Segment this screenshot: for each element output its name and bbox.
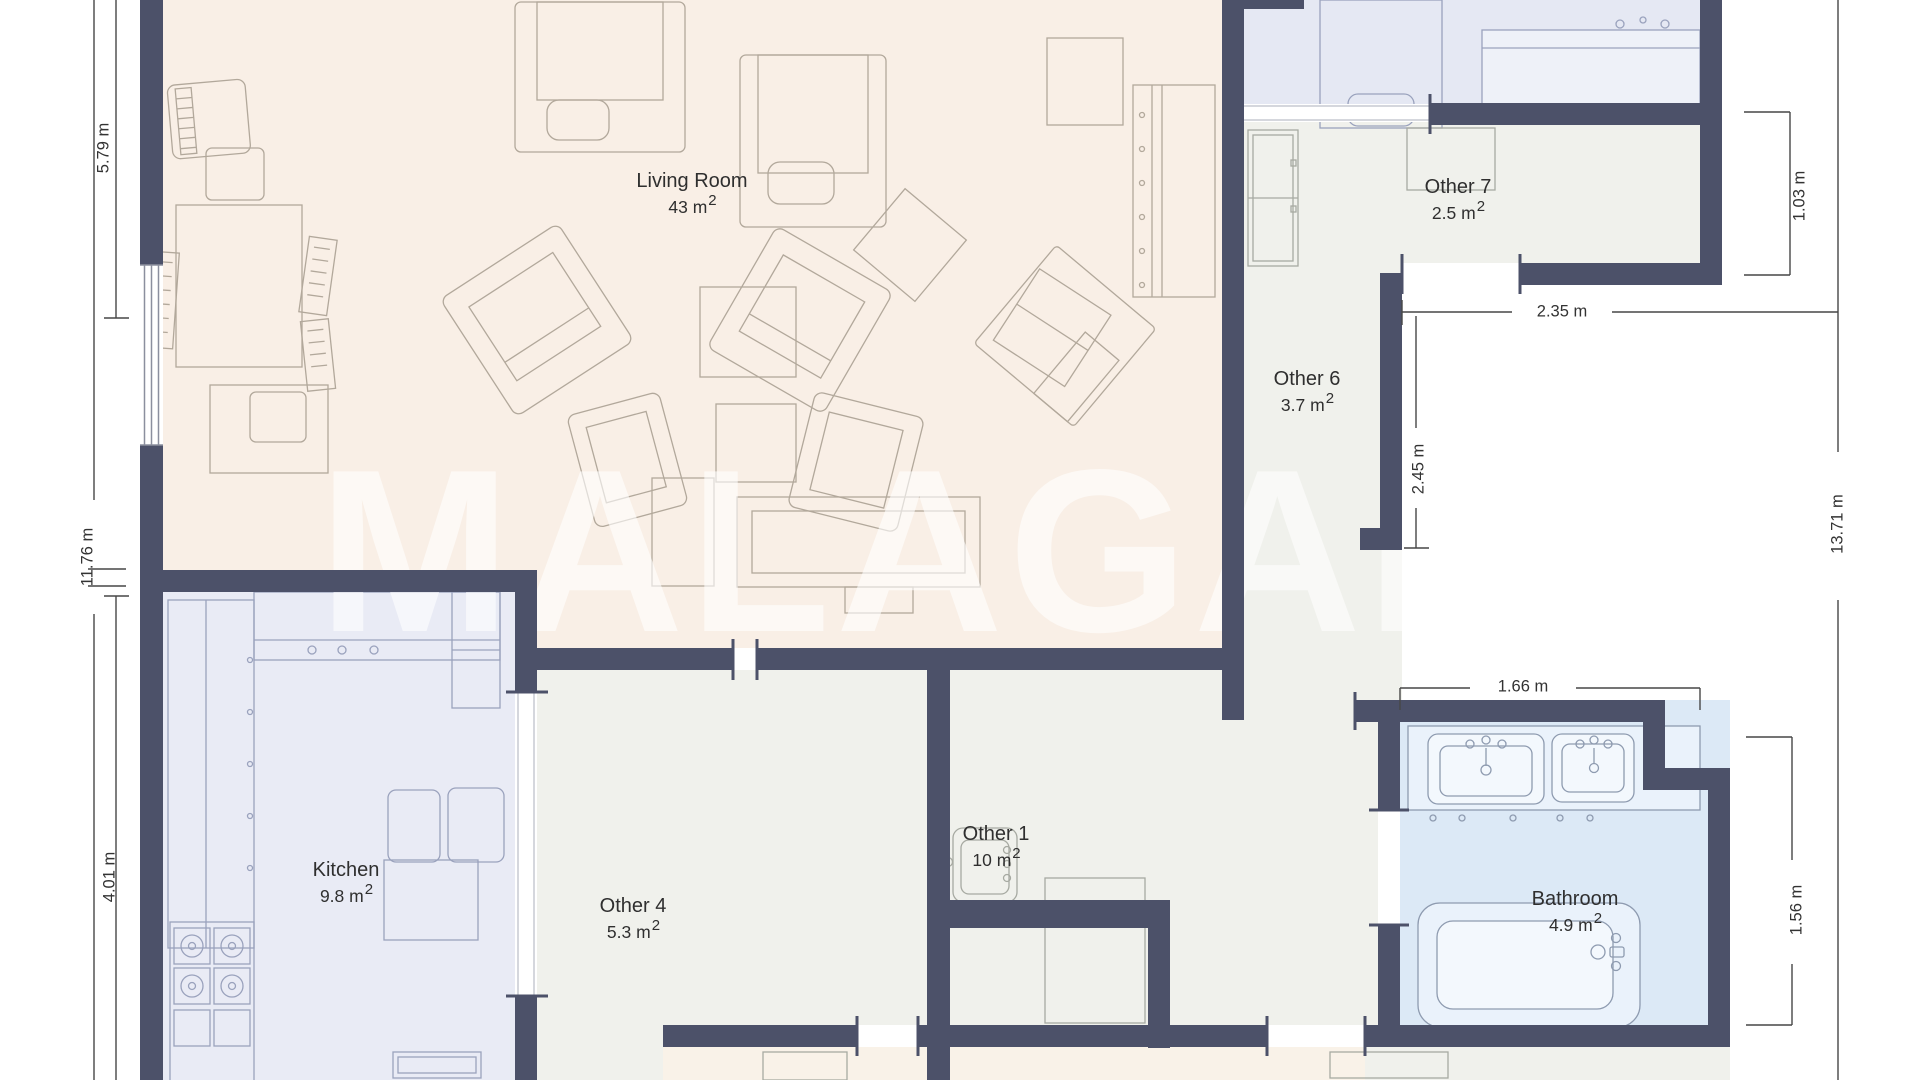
dimension-label-1-03: 1.03 m <box>1791 171 1810 221</box>
room-area: 3.7 m2 <box>1274 392 1341 415</box>
room-label-other1: Other 1 10 m2 <box>963 822 1030 870</box>
room-label-kitchen: Kitchen 9.8 m2 <box>313 858 380 906</box>
room-label-living: Living Room 43 m2 <box>636 169 747 217</box>
dimension-label-2-45: 2.45 m <box>1410 444 1429 494</box>
room-label-other4: Other 4 5.3 m2 <box>600 894 667 942</box>
walls <box>140 0 1730 1080</box>
room-label-other7: Other 7 2.5 m2 <box>1425 175 1492 223</box>
dimension-label-5-79: 5.79 m <box>95 123 114 173</box>
room-area: 10 m2 <box>963 847 1030 870</box>
dimension-label-1-66: 1.66 m <box>1498 678 1548 697</box>
dimension-label-11-76: 11.76 m <box>79 528 98 586</box>
room-name: Other 7 <box>1425 175 1492 200</box>
dimension-label-4-01: 4.01 m <box>101 852 120 902</box>
room-name: Bathroom <box>1532 887 1619 912</box>
room-label-other6: Other 6 3.7 m2 <box>1274 367 1341 415</box>
dimension-label-1-56: 1.56 m <box>1788 885 1807 935</box>
room-area: 2.5 m2 <box>1425 200 1492 223</box>
room-area: 9.8 m2 <box>313 883 380 906</box>
room-name: Other 1 <box>963 822 1030 847</box>
window-icon <box>140 265 163 445</box>
dimension-label-13-71: 13.71 m <box>1829 494 1848 554</box>
dimension-label-2-35: 2.35 m <box>1537 303 1587 322</box>
room-name: Other 4 <box>600 894 667 919</box>
walls-and-dimensions-layer <box>0 0 1920 1080</box>
room-area: 4.9 m2 <box>1532 912 1619 935</box>
room-name: Other 6 <box>1274 367 1341 392</box>
room-area: 43 m2 <box>636 194 747 217</box>
room-area: 5.3 m2 <box>600 919 667 942</box>
room-name: Living Room <box>636 169 747 194</box>
room-name: Kitchen <box>313 858 380 883</box>
floor-plan: MALAGAM <box>0 0 1920 1080</box>
room-label-bathroom: Bathroom 4.9 m2 <box>1532 887 1619 935</box>
